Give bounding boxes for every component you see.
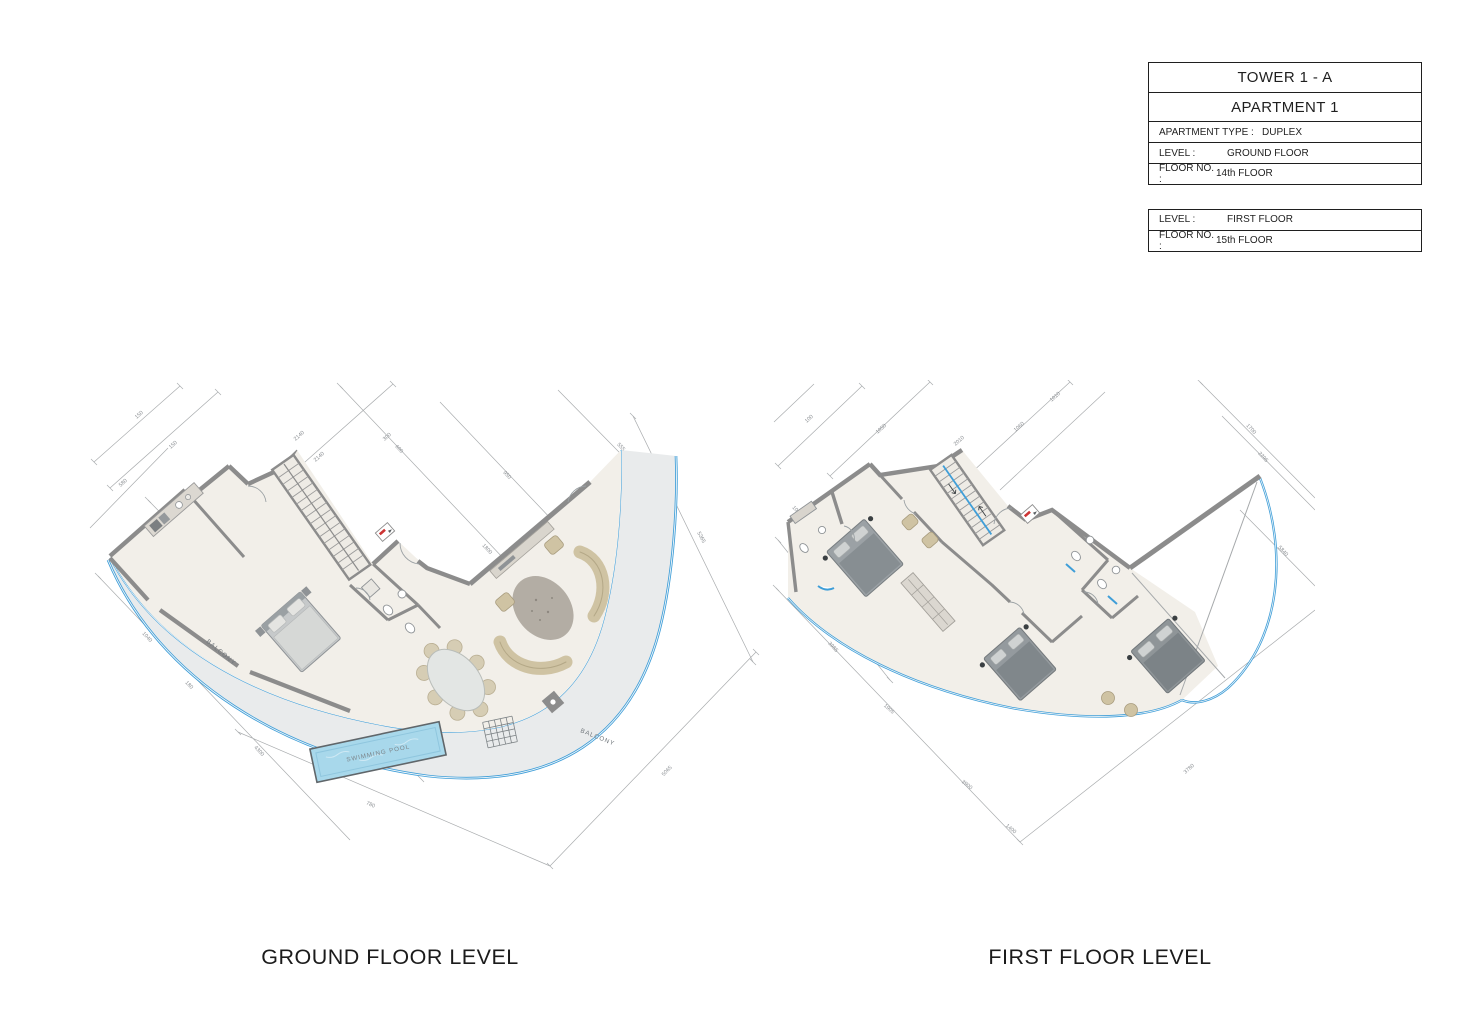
- floor-no-label-2: FLOOR NO. :: [1159, 230, 1216, 252]
- apartment-type-value: DUPLEX: [1262, 127, 1302, 138]
- svg-text:3900: 3900: [960, 779, 973, 791]
- apartment-type-row: APARTMENT TYPE : DUPLEX: [1148, 121, 1422, 143]
- level-label: LEVEL :: [1159, 148, 1227, 159]
- first-floor-plan: 100 1020 910 2010 950 1050 1060 1010 398…: [770, 380, 1315, 885]
- ground-floor-caption: GROUND FLOOR LEVEL: [180, 945, 600, 970]
- svg-text:1800: 1800: [480, 543, 493, 556]
- floor-no-row-2: FLOOR NO. : 15th FLOOR: [1148, 230, 1422, 252]
- apartment-type-label: APARTMENT TYPE :: [1159, 127, 1262, 138]
- level-value: GROUND FLOOR: [1227, 148, 1309, 159]
- floor-no-value: 14th FLOOR: [1216, 168, 1273, 179]
- tower-title: TOWER 1 - A: [1148, 62, 1422, 93]
- exit-tag-icon: [375, 523, 394, 542]
- floor-no-value-2: 15th FLOOR: [1216, 235, 1273, 246]
- svg-text:2140: 2140: [293, 430, 306, 442]
- level-value-2: FIRST FLOOR: [1227, 214, 1293, 225]
- level-row: LEVEL : GROUND FLOOR: [1148, 142, 1422, 164]
- ground-floor-plan: 580 150 150 2140 2140 950 600 300 1800 5…: [88, 380, 788, 885]
- svg-text:3780: 3780: [1183, 763, 1196, 775]
- level-label-2: LEVEL :: [1159, 214, 1227, 225]
- svg-text:1050: 1050: [875, 423, 888, 435]
- svg-text:180: 180: [183, 680, 194, 691]
- svg-text:4300: 4300: [252, 745, 265, 758]
- svg-text:150: 150: [168, 440, 179, 450]
- svg-text:1400: 1400: [1004, 823, 1017, 835]
- svg-text:100: 100: [804, 414, 815, 424]
- first-floor-caption: FIRST FLOOR LEVEL: [900, 945, 1300, 970]
- svg-text:950: 950: [501, 470, 512, 481]
- svg-text:2010: 2010: [953, 435, 966, 447]
- svg-text:1905: 1905: [882, 703, 895, 715]
- svg-text:5065: 5065: [661, 765, 674, 778]
- svg-text:5365: 5365: [695, 531, 706, 544]
- apartment-title: APARTMENT 1: [1148, 92, 1422, 123]
- svg-text:1060: 1060: [1013, 421, 1026, 433]
- title-block: TOWER 1 - A APARTMENT 1 APARTMENT TYPE :…: [1148, 62, 1422, 252]
- svg-text:5840: 5840: [1276, 545, 1289, 558]
- drawing-sheet: TOWER 1 - A APARTMENT 1 APARTMENT TYPE :…: [0, 0, 1484, 1024]
- svg-text:1010: 1010: [1049, 391, 1062, 403]
- svg-text:600: 600: [393, 444, 404, 455]
- floor-no-row: FLOOR NO. : 14th FLOOR: [1148, 163, 1422, 185]
- svg-text:780: 780: [365, 801, 376, 810]
- level-row-2: LEVEL : FIRST FLOOR: [1148, 209, 1422, 231]
- svg-text:1700: 1700: [1244, 423, 1257, 436]
- svg-text:300: 300: [382, 432, 393, 442]
- floor-no-label: FLOOR NO. :: [1159, 163, 1216, 185]
